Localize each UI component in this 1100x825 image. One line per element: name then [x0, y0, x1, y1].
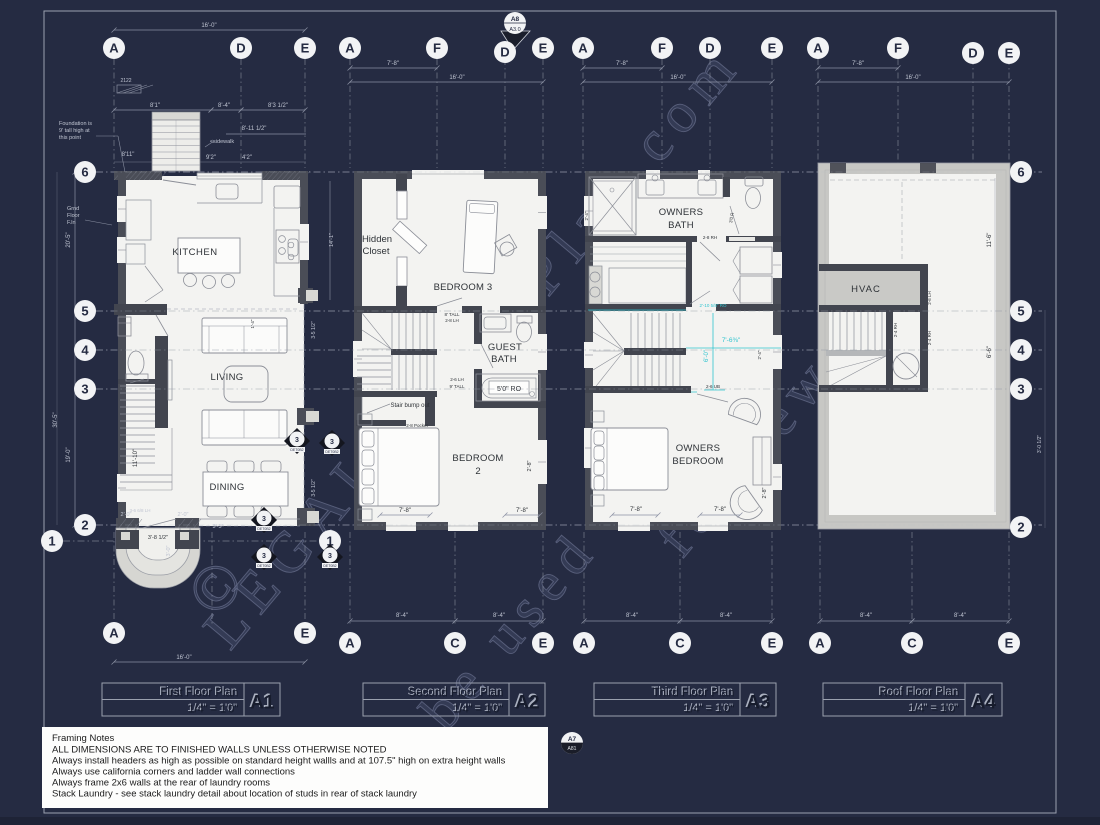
svg-text:2: 2	[475, 466, 480, 477]
svg-text:16'-0": 16'-0"	[905, 75, 920, 81]
svg-text:Second Floor Plan: Second Floor Plan	[409, 687, 504, 699]
svg-text:8'-4": 8'-4"	[396, 613, 408, 619]
svg-text:BATH: BATH	[491, 354, 517, 365]
svg-text:A4: A4	[972, 692, 997, 713]
svg-text:2'-10 5/8" RO: 2'-10 5/8" RO	[700, 303, 727, 308]
svg-text:Foundation is: Foundation is	[59, 121, 92, 127]
svg-text:4: 4	[81, 343, 89, 358]
svg-text:16'-0": 16'-0"	[670, 75, 685, 81]
svg-text:A3.0: A3.0	[509, 27, 520, 33]
svg-text:Roof Floor Plan: Roof Floor Plan	[879, 687, 959, 699]
svg-text:Framing Notes: Framing Notes	[52, 733, 115, 744]
svg-text:BEDROOM 3: BEDROOM 3	[434, 282, 493, 293]
svg-text:3: 3	[262, 553, 266, 560]
svg-text:OWNERS: OWNERS	[676, 443, 721, 454]
svg-text:3-5 1/2": 3-5 1/2"	[311, 479, 317, 497]
svg-text:<sidewalk: <sidewalk	[210, 139, 235, 145]
svg-text:C: C	[907, 636, 917, 651]
svg-text:2: 2	[1017, 520, 1024, 535]
svg-text:16'-0": 16'-0"	[176, 655, 191, 661]
svg-text:7'-8": 7'-8"	[630, 507, 642, 513]
svg-text:Closet: Closet	[363, 246, 390, 257]
svg-text:A: A	[109, 41, 119, 56]
svg-text:9' tall high at: 9' tall high at	[59, 128, 90, 134]
svg-text:A: A	[109, 626, 119, 641]
svg-text:8'11": 8'11"	[122, 152, 135, 158]
svg-text:BEDROOM: BEDROOM	[672, 456, 723, 467]
svg-text:7'-8": 7'-8"	[714, 507, 726, 513]
svg-text:F: F	[894, 41, 902, 56]
svg-text:5: 5	[1017, 304, 1024, 319]
svg-text:7'-8": 7'-8"	[616, 61, 628, 67]
svg-text:8' TALL: 8' TALL	[445, 312, 460, 317]
svg-text:7'-8": 7'-8"	[387, 61, 399, 67]
svg-text:D: D	[705, 41, 714, 56]
svg-text:A8: A8	[511, 16, 520, 23]
svg-text:E: E	[768, 636, 777, 651]
svg-text:F: F	[658, 41, 666, 56]
svg-text:A: A	[578, 41, 588, 56]
svg-text:3: 3	[262, 516, 266, 523]
svg-text:20'-5": 20'-5"	[66, 232, 72, 247]
svg-text:Floor: Floor	[67, 213, 80, 219]
svg-text:5'0" RO: 5'0" RO	[497, 386, 522, 393]
svg-text:3-5 1/2": 3-5 1/2"	[311, 321, 317, 339]
svg-text:A: A	[579, 636, 589, 651]
svg-text:2-8 RH: 2-8 RH	[703, 235, 717, 240]
svg-text:7'-8": 7'-8"	[516, 508, 528, 514]
svg-text:A2: A2	[515, 692, 539, 713]
svg-text:1'-4": 1'-4"	[250, 319, 255, 328]
svg-text:C: C	[450, 636, 460, 651]
svg-text:D: D	[500, 45, 509, 60]
svg-text:2'-8": 2'-8"	[762, 487, 768, 498]
svg-text:Always install headers as high: Always install headers as high as possib…	[52, 756, 506, 767]
svg-text:E: E	[301, 626, 310, 641]
svg-text:8'3 1/2": 8'3 1/2"	[268, 103, 288, 109]
svg-text:1: 1	[48, 534, 55, 549]
svg-text:30'-5": 30'-5"	[53, 412, 59, 427]
svg-text:E: E	[1005, 46, 1014, 61]
svg-text:A7: A7	[568, 736, 577, 743]
svg-text:First Floor Plan: First Floor Plan	[160, 687, 238, 699]
svg-text:5: 5	[81, 304, 88, 319]
svg-text:4'2": 4'2"	[242, 155, 252, 161]
svg-text:F: F	[433, 41, 441, 56]
svg-text:2: 2	[81, 518, 88, 533]
svg-text:Stair bump out: Stair bump out	[390, 403, 429, 409]
svg-text:C: C	[675, 636, 685, 651]
svg-text:2'-4": 2'-4"	[757, 350, 762, 359]
svg-text:19'-0": 19'-0"	[66, 447, 72, 462]
svg-text:3: 3	[1017, 382, 1024, 397]
svg-text:2-6 UB: 2-6 UB	[706, 384, 720, 389]
svg-text:2-8 LH: 2-8 LH	[445, 318, 459, 323]
svg-text:OWNERS: OWNERS	[659, 207, 704, 218]
svg-text:3-6 6/8 LH: 3-6 6/8 LH	[129, 508, 150, 513]
svg-text:GUEST: GUEST	[488, 342, 522, 353]
svg-text:ALL DIMENSIONS ARE TO FINISHED: ALL DIMENSIONS ARE TO FINISHED WALLS UNL…	[52, 745, 387, 756]
svg-text:6'-6": 6'-6"	[987, 346, 993, 358]
svg-text:A: A	[813, 41, 823, 56]
svg-text:7'-8": 7'-8"	[852, 61, 864, 67]
svg-text:Always use california corners: Always use california corners and ladder…	[52, 767, 295, 778]
svg-text:16'-0": 16'-0"	[201, 23, 216, 29]
svg-text:1/4" = 1'0": 1/4" = 1'0"	[188, 703, 238, 715]
svg-text:DINING: DINING	[209, 482, 244, 493]
svg-text:2'-4": 2'-4"	[584, 211, 589, 220]
svg-text:E: E	[539, 41, 548, 56]
svg-text:14'-1": 14'-1"	[329, 233, 335, 247]
svg-text:this point: this point	[59, 135, 81, 141]
svg-text:8'-11 1/2": 8'-11 1/2"	[242, 126, 267, 132]
svg-text:6: 6	[1017, 165, 1024, 180]
svg-text:Stack Laundry - see stack laun: Stack Laundry - see stack laundry detail…	[52, 789, 417, 800]
svg-text:Hidden: Hidden	[362, 234, 392, 245]
svg-text:2'-0": 2'-0"	[178, 512, 189, 518]
svg-text:KITCHEN: KITCHEN	[172, 247, 217, 258]
svg-text:9'2": 9'2"	[206, 155, 216, 161]
svg-text:2-4 RH: 2-4 RH	[927, 331, 932, 345]
svg-text:A3: A3	[746, 692, 770, 713]
svg-text:2-6 LH: 2-6 LH	[927, 291, 932, 305]
svg-text:1/4" = 1'0": 1/4" = 1'0"	[684, 703, 734, 715]
svg-text:A81: A81	[568, 746, 577, 752]
svg-text:4: 4	[1017, 343, 1025, 358]
svg-text:1/4" = 1'0": 1/4" = 1'0"	[453, 703, 503, 715]
svg-text:E: E	[768, 41, 777, 56]
svg-text:A: A	[345, 41, 355, 56]
svg-text:2'-8": 2'-8"	[527, 460, 533, 471]
svg-text:3: 3	[81, 382, 88, 397]
svg-text:BATH: BATH	[668, 220, 694, 231]
svg-text:2-8 Pocket: 2-8 Pocket	[406, 423, 428, 428]
svg-text:E: E	[301, 41, 310, 56]
svg-text:D: D	[236, 41, 245, 56]
svg-text:DET0B2: DET0B2	[325, 450, 338, 454]
svg-text:8'-4": 8'-4"	[626, 613, 638, 619]
svg-text:8'-4": 8'-4"	[493, 613, 505, 619]
svg-text:8'-4": 8'-4"	[860, 613, 872, 619]
svg-text:3'-0 1/2": 3'-0 1/2"	[1037, 435, 1043, 454]
svg-text:A: A	[815, 636, 825, 651]
svg-text:8'-4": 8'-4"	[954, 613, 966, 619]
svg-text:11'-6": 11'-6"	[987, 233, 993, 248]
svg-text:8'-4": 8'-4"	[218, 103, 230, 109]
svg-text:8'-4": 8'-4"	[720, 613, 732, 619]
svg-text:DET0B2: DET0B2	[323, 564, 336, 568]
svg-text:3: 3	[328, 553, 332, 560]
svg-text:HVAC: HVAC	[851, 284, 881, 295]
svg-text:6'-0": 6'-0"	[704, 350, 710, 362]
svg-text:Always frame 2x6 walls at the: Always frame 2x6 walls at the rear of la…	[52, 778, 270, 789]
svg-text:DET0B2: DET0B2	[290, 448, 303, 452]
svg-text:3'-8 1/2": 3'-8 1/2"	[148, 535, 168, 541]
svg-text:D: D	[968, 46, 977, 61]
svg-text:3: 3	[330, 439, 334, 446]
svg-text:3'-0": 3'-0"	[166, 545, 172, 556]
svg-text:11'-10": 11'-10"	[133, 449, 139, 467]
svg-text:8'1": 8'1"	[150, 103, 160, 109]
svg-text:2-6 LH: 2-6 LH	[450, 377, 464, 382]
svg-text:E: E	[539, 636, 548, 651]
svg-text:1/4" = 1'0": 1/4" = 1'0"	[909, 703, 959, 715]
svg-text:DET0B2: DET0B2	[257, 527, 270, 531]
svg-text:Grnd: Grnd	[67, 206, 79, 212]
svg-text:A: A	[345, 636, 355, 651]
svg-text:2122: 2122	[120, 78, 131, 84]
svg-text:6: 6	[81, 165, 88, 180]
svg-text:LIVING: LIVING	[211, 372, 244, 383]
svg-text:3: 3	[295, 437, 299, 444]
svg-text:2-4 RH: 2-4 RH	[893, 323, 898, 337]
svg-text:DET0B2: DET0B2	[257, 564, 270, 568]
svg-text:Third Floor Plan: Third Floor Plan	[653, 687, 735, 699]
svg-text:A1: A1	[250, 692, 275, 713]
svg-text:7'-8": 7'-8"	[399, 508, 411, 514]
svg-text:E: E	[1005, 636, 1014, 651]
svg-text:7'-6⅜": 7'-6⅜"	[722, 337, 741, 344]
svg-text:BEDROOM: BEDROOM	[452, 453, 503, 464]
svg-text:16'-0": 16'-0"	[449, 75, 464, 81]
svg-text:9' TALL: 9' TALL	[450, 384, 465, 389]
svg-text:F.ln: F.ln	[67, 220, 76, 226]
